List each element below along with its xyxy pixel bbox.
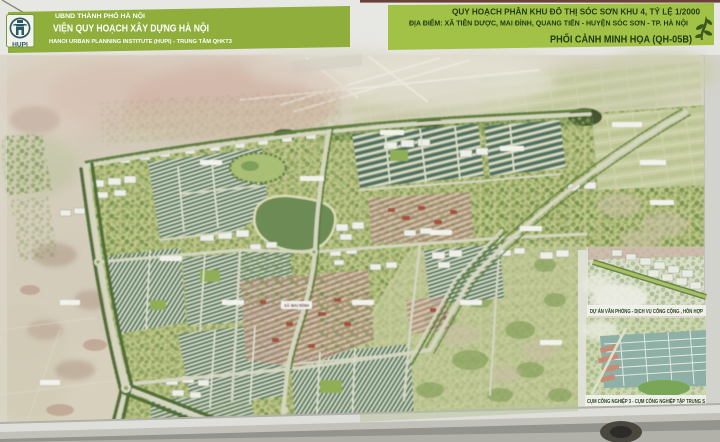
svg-text:HUPI: HUPI bbox=[12, 42, 28, 49]
svg-text:CỤM CÔNG NGHIỆP 3 - CỤM CÔNG N: CỤM CÔNG NGHIỆP 3 - CỤM CÔNG NGHIỆP TẬP … bbox=[587, 397, 705, 405]
svg-text:HANOI URBAN PLANNING INSTITUTE: HANOI URBAN PLANNING INSTITUTE (HUPI) - … bbox=[49, 38, 233, 45]
svg-text:DỰ ÁN VĂN PHÒNG - DỊCH VỤ CÔNG: DỰ ÁN VĂN PHÒNG - DỊCH VỤ CÔNG CỘNG , HỖ… bbox=[590, 307, 703, 315]
svg-text:QUY HOẠCH PHÂN KHU ĐÔ THỊ SÓC: QUY HOẠCH PHÂN KHU ĐÔ THỊ SÓC SƠN KHU 4,… bbox=[452, 6, 700, 17]
svg-text:VIỆN QUY HOẠCH XÂY DỰNG HÀ NỘI: VIỆN QUY HOẠCH XÂY DỰNG HÀ NỘI bbox=[53, 22, 209, 35]
svg-text:PHỐI CẢNH MINH HỌA (QH-05B): PHỐI CẢNH MINH HỌA (QH-05B) bbox=[550, 32, 692, 46]
